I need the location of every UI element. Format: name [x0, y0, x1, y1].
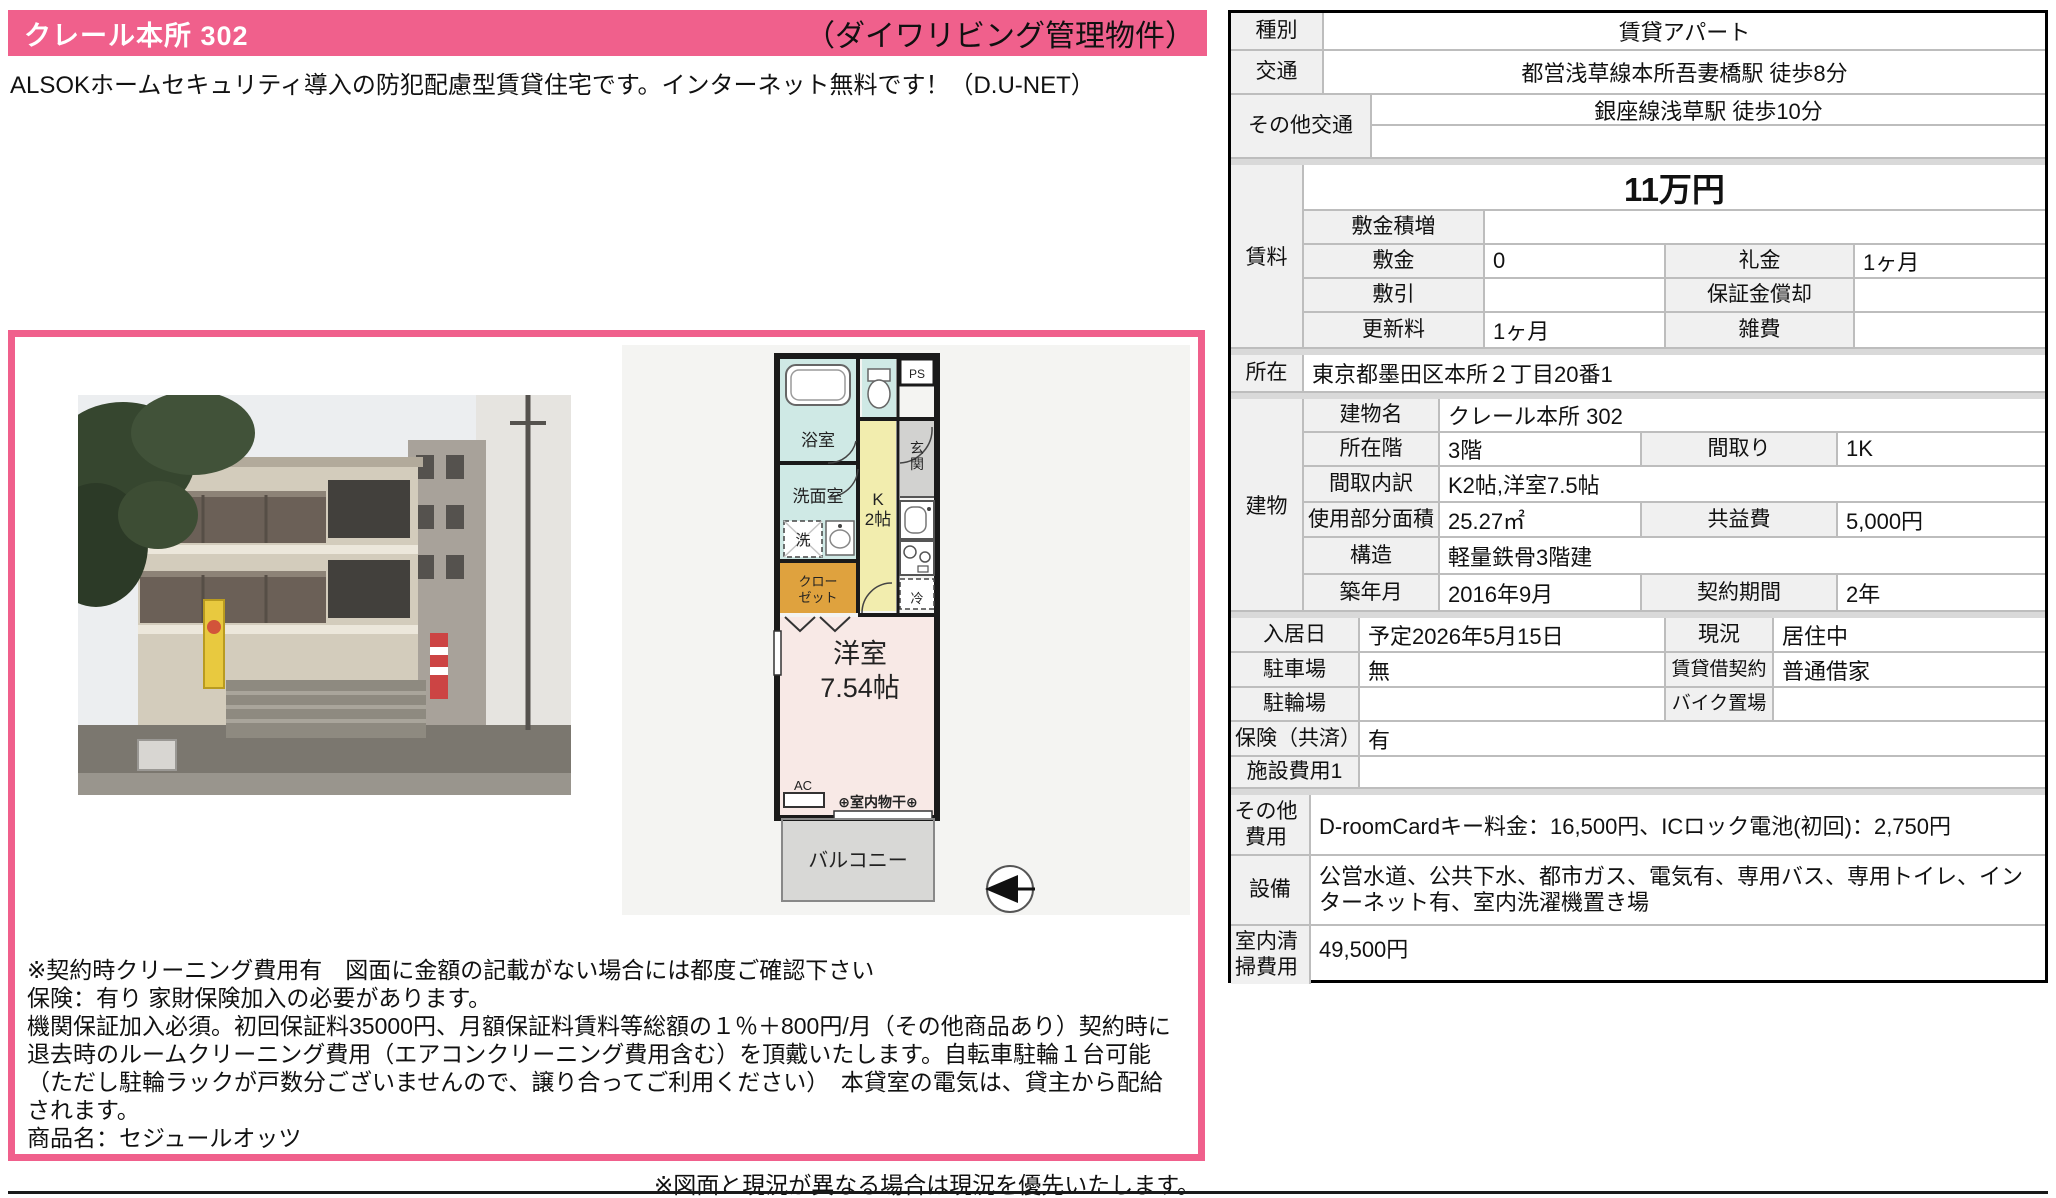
room-label-genkan-2: 関 — [910, 456, 924, 472]
table-row: 種別 賃貸アパート — [1231, 13, 2045, 51]
shikibiki-value — [1485, 279, 1666, 311]
access-value: 都営浅草線本所吾妻橋駅 徒歩8分 — [1324, 51, 2045, 93]
misc-fee-value — [1855, 313, 2045, 347]
guarantee-amortization-value — [1855, 279, 2045, 311]
room-label-closet-2: ゼット — [798, 590, 837, 605]
bike-parking-value — [1774, 688, 2045, 720]
bicycle-parking-value — [1360, 688, 1666, 720]
bottom-divider — [8, 1191, 2048, 1194]
rent-section: 賃料 11万円 敷金積増 敷金 0 礼金 1ヶ月 敷引 保証金償却 — [1231, 165, 2045, 349]
property-title: クレール本所 302 — [24, 14, 249, 53]
room-label-bath: 浴室 — [801, 431, 835, 450]
lease-type-label: 賃貸借契約 — [1666, 653, 1774, 686]
table-row: その他費用 D-roomCardキー料金：16,500円、ICロック電池(初回)… — [1231, 795, 2045, 856]
other-access-label: その他交通 — [1231, 95, 1372, 157]
table-row: 入居日 予定2026年5月15日 現況 居住中 — [1231, 618, 2045, 653]
building-photo — [78, 395, 571, 795]
cleaning-fee-label: 室内清掃費用 — [1231, 926, 1311, 984]
room-label-main-1: 洋室 — [833, 639, 887, 669]
room-label-ac: AC — [794, 778, 812, 793]
access-label: 交通 — [1231, 51, 1324, 93]
table-row: 駐輪場 バイク置場 — [1231, 688, 2045, 722]
contract-term-label: 契約期間 — [1642, 575, 1838, 610]
property-detail-table: 種別 賃貸アパート 交通 都営浅草線本所吾妻橋駅 徒歩8分 その他交通 銀座線浅… — [1228, 10, 2048, 983]
location-label: 所在 — [1231, 355, 1304, 391]
rent-label: 賃料 — [1231, 165, 1304, 347]
layout-detail-value: K2帖,洋室7.5帖 — [1440, 467, 2045, 501]
room-label-genkan-1: 玄 — [910, 440, 924, 456]
property-visual-box: 浴室 PS 玄 関 洗面室 洗 K 2帖 クロー ゼット 冷 洋室 7.54帖 … — [8, 330, 1205, 1161]
deposit-increase-value — [1485, 211, 2045, 243]
common-fee-value: 5,000円 — [1838, 503, 2045, 536]
current-status-value: 居住中 — [1774, 618, 2045, 651]
built-date-label: 築年月 — [1304, 575, 1440, 610]
guarantee-amortization-label: 保証金償却 — [1666, 279, 1855, 311]
room-label-ps: PS — [909, 367, 925, 381]
layout-detail-label: 間取内訳 — [1304, 467, 1440, 501]
bike-parking-label: バイク置場 — [1666, 688, 1774, 720]
parking-value: 無 — [1360, 653, 1666, 686]
insurance-label: 保険（共済） — [1231, 722, 1360, 755]
built-date-value: 2016年9月 — [1440, 575, 1642, 610]
table-row: 交通 都営浅草線本所吾妻橋駅 徒歩8分 — [1231, 51, 2045, 95]
other-access-value: 銀座線浅草駅 徒歩10分 — [1372, 95, 2045, 126]
management-company-label: （ダイワリビング管理物件） — [805, 11, 1195, 55]
move-in-value: 予定2026年5月15日 — [1360, 618, 1666, 651]
common-fee-label: 共益費 — [1642, 503, 1838, 536]
other-cost-label: その他費用 — [1231, 795, 1311, 854]
equipment-value: 公営水道、公共下水、都市ガス、電気有、専用バス、専用トイレ、インターネット有、室… — [1311, 856, 2045, 924]
parking-label: 駐車場 — [1231, 653, 1360, 686]
room-label-senmen: 洗面室 — [793, 487, 844, 506]
location-value: 東京都墨田区本所２丁目20番1 — [1304, 355, 2045, 391]
equipment-label: 設備 — [1231, 856, 1311, 924]
shikibiki-label: 敷引 — [1304, 279, 1485, 311]
room-label-closet-1: クロー — [798, 574, 837, 589]
area-value: 25.27㎡ — [1440, 503, 1642, 536]
current-status-label: 現況 — [1666, 618, 1774, 651]
table-row: その他交通 銀座線浅草駅 徒歩10分 — [1231, 95, 2045, 159]
contract-notes: ※契約時クリーニング費用有 図面に金額の記載がない場合には都度ご確認下さい 保険… — [27, 956, 1185, 1152]
type-label: 種別 — [1231, 13, 1324, 49]
move-in-label: 入居日 — [1231, 618, 1360, 651]
cleaning-fee-value: 49,500円 — [1311, 926, 2045, 984]
facility-fee-label: 施設費用1 — [1231, 757, 1360, 787]
table-row: 施設費用1 — [1231, 757, 2045, 789]
room-label-rei: 冷 — [910, 591, 923, 606]
rent-value: 11万円 — [1304, 165, 2045, 209]
table-row: 設備 公営水道、公共下水、都市ガス、電気有、専用バス、専用トイレ、インターネット… — [1231, 856, 2045, 926]
layout-value: 1K — [1838, 433, 2045, 465]
floor-label: 所在階 — [1304, 433, 1440, 465]
misc-fee-label: 雑費 — [1666, 313, 1855, 347]
room-label-k2: 2帖 — [865, 510, 891, 529]
deposit-label: 敷金 — [1304, 245, 1485, 277]
room-label-balcony: バルコニー — [808, 850, 908, 872]
floor-value: 3階 — [1440, 433, 1642, 465]
type-value: 賃貸アパート — [1324, 13, 2045, 49]
table-row: 所在 東京都墨田区本所２丁目20番1 — [1231, 355, 2045, 393]
building-label: 建物 — [1231, 399, 1304, 610]
building-name-label: 建物名 — [1304, 399, 1440, 431]
building-section: 建物 建物名 クレール本所 302 所在階 3階 間取り 1K 間取内訳 K2帖… — [1231, 399, 2045, 612]
lease-type-value: 普通借家 — [1774, 653, 2045, 686]
structure-label: 構造 — [1304, 538, 1440, 573]
facility-fee-value — [1360, 757, 2045, 787]
area-label: 使用部分面積 — [1304, 503, 1440, 536]
structure-value: 軽量鉄骨3階建 — [1440, 538, 2045, 573]
room-label-main-2: 7.54帖 — [820, 673, 900, 703]
other-access-value-2 — [1372, 126, 2045, 157]
compass-icon — [985, 866, 1035, 912]
other-cost-value: D-roomCardキー料金：16,500円、ICロック電池(初回)：2,750… — [1311, 795, 2045, 854]
insurance-value: 有 — [1360, 722, 2045, 755]
table-row: 保険（共済） 有 — [1231, 722, 2045, 757]
contract-term-value: 2年 — [1838, 575, 2045, 610]
renewal-fee-value: 1ヶ月 — [1485, 313, 1666, 347]
key-money-value: 1ヶ月 — [1855, 245, 2045, 277]
property-header-bar: クレール本所 302 （ダイワリビング管理物件） — [8, 10, 1207, 56]
bicycle-parking-label: 駐輪場 — [1231, 688, 1360, 720]
layout-label: 間取り — [1642, 433, 1838, 465]
building-name-value: クレール本所 302 — [1440, 399, 2045, 431]
room-label-monohoshi: ⊕室内物干⊕ — [838, 794, 917, 810]
table-row: 駐車場 無 賃貸借契約 普通借家 — [1231, 653, 2045, 688]
renewal-fee-label: 更新料 — [1304, 313, 1485, 347]
deposit-increase-label: 敷金積増 — [1304, 211, 1485, 243]
room-label-k1: K — [872, 490, 884, 509]
floor-plan: 浴室 PS 玄 関 洗面室 洗 K 2帖 クロー ゼット 冷 洋室 7.54帖 … — [622, 345, 1190, 915]
key-money-label: 礼金 — [1666, 245, 1855, 277]
table-row: 室内清掃費用 49,500円 — [1231, 926, 2045, 984]
property-description: ALSOKホームセキュリティ導入の防犯配慮型賃貸住宅です。インターネット無料です… — [10, 70, 1120, 101]
deposit-value: 0 — [1485, 245, 1666, 277]
room-label-sen: 洗 — [795, 532, 810, 549]
